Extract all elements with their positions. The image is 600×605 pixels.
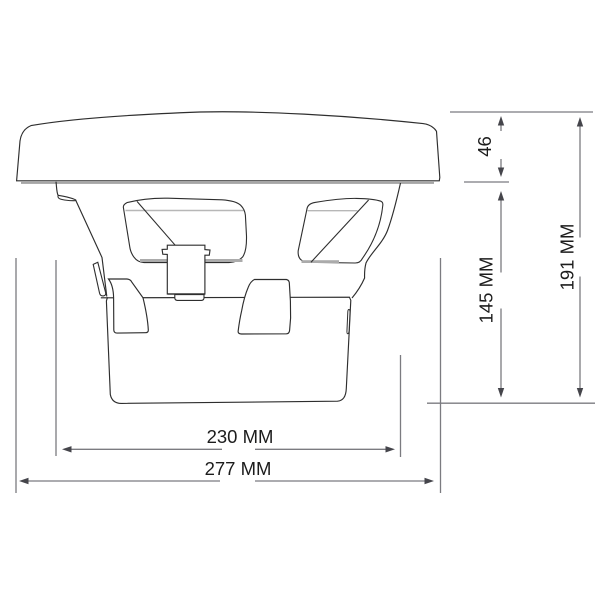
svg-text:46: 46 xyxy=(474,136,495,157)
svg-text:277 MM: 277 MM xyxy=(205,458,272,479)
svg-text:191 MM: 191 MM xyxy=(557,224,578,291)
svg-text:230 MM: 230 MM xyxy=(207,426,274,447)
svg-text:145 MM: 145 MM xyxy=(476,257,497,324)
